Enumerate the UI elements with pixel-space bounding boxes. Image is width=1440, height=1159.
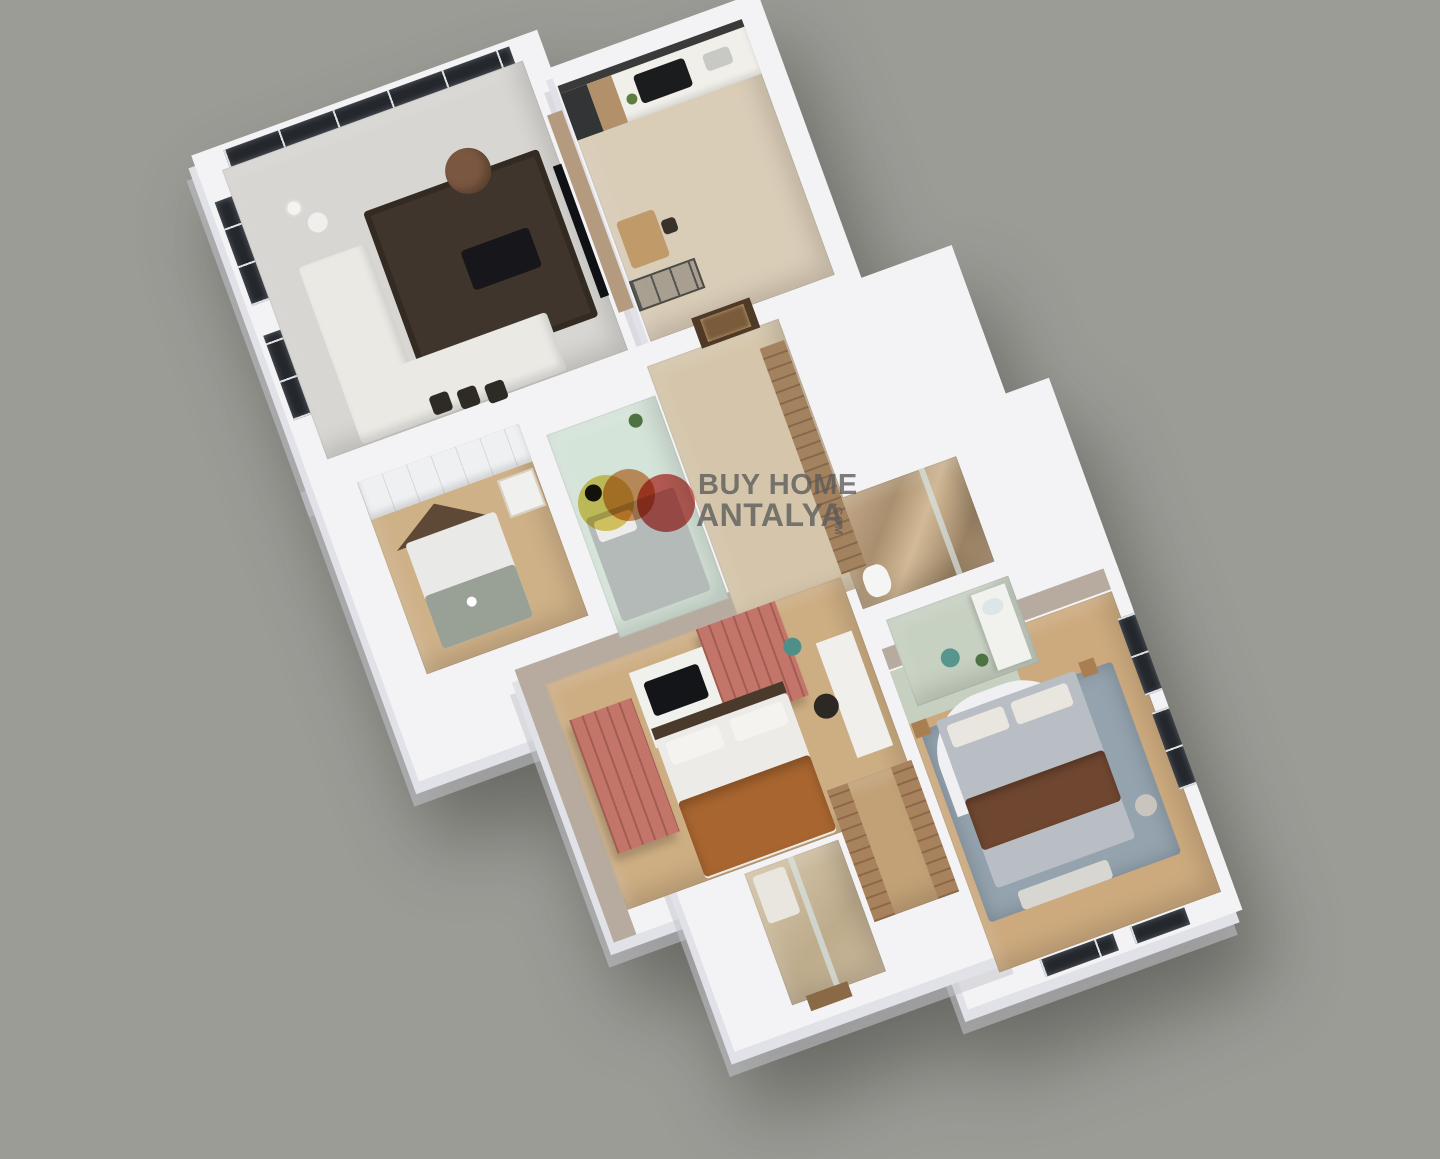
watermark: BUY HOME ANTALYA .COM xyxy=(560,440,890,560)
render-canvas: BUY HOME ANTALYA .COM xyxy=(0,0,1440,1080)
logo-red-circle xyxy=(637,474,695,532)
watermark-line1: BUY HOME xyxy=(698,471,858,500)
watermark-suffix: .COM xyxy=(832,503,844,536)
watermark-line2: ANTALYA xyxy=(696,499,844,531)
